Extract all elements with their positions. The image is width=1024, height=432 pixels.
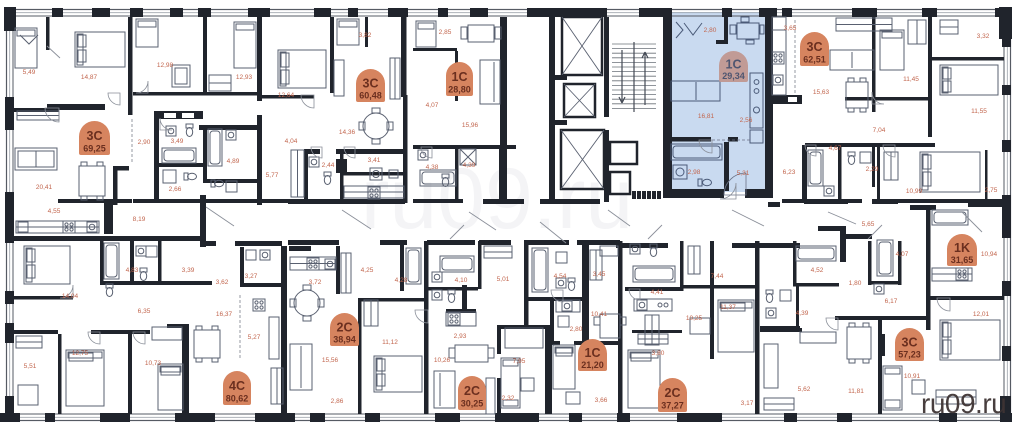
svg-text:2,29: 2,29 (866, 166, 879, 173)
svg-text:10,41: 10,41 (591, 311, 608, 318)
svg-text:4,25: 4,25 (361, 267, 374, 274)
svg-text:6,23: 6,23 (783, 169, 796, 176)
svg-text:3C: 3C (87, 129, 103, 143)
svg-text:1K: 1K (954, 241, 970, 255)
svg-text:12,93: 12,93 (236, 74, 253, 81)
svg-text:3,62: 3,62 (216, 279, 229, 286)
svg-text:37,27: 37,27 (661, 401, 684, 411)
svg-text:10,73: 10,73 (145, 360, 162, 367)
svg-text:3,41: 3,41 (368, 157, 381, 164)
svg-text:14,87: 14,87 (81, 74, 98, 81)
svg-text:14,04: 14,04 (62, 293, 79, 300)
svg-text:2,44: 2,44 (322, 162, 335, 169)
svg-text:7,95: 7,95 (513, 358, 526, 365)
svg-text:30,25: 30,25 (461, 399, 484, 409)
svg-text:1,80: 1,80 (849, 280, 862, 287)
svg-text:2C: 2C (464, 384, 480, 398)
svg-text:5,49: 5,49 (23, 69, 36, 76)
svg-text:8,19: 8,19 (133, 216, 146, 223)
svg-text:6,35: 6,35 (138, 308, 151, 315)
svg-text:2,98: 2,98 (688, 169, 701, 176)
svg-text:4,55: 4,55 (48, 208, 61, 215)
svg-text:2C: 2C (337, 320, 353, 334)
svg-text:15,96: 15,96 (462, 122, 479, 129)
svg-text:4,28: 4,28 (395, 277, 408, 284)
svg-text:4,41: 4,41 (651, 289, 664, 296)
svg-text:10,94: 10,94 (981, 251, 998, 258)
svg-text:1C: 1C (452, 70, 468, 84)
svg-text:2,80: 2,80 (704, 27, 717, 34)
svg-text:21,20: 21,20 (581, 360, 604, 370)
svg-text:69,25: 69,25 (83, 144, 106, 154)
svg-text:16,81: 16,81 (698, 113, 715, 120)
svg-text:3,66: 3,66 (595, 397, 608, 404)
svg-text:5,77: 5,77 (266, 172, 279, 179)
svg-text:4,83: 4,83 (126, 267, 139, 274)
svg-text:6,17: 6,17 (885, 298, 898, 305)
svg-text:2C: 2C (665, 386, 681, 400)
svg-text:4,07: 4,07 (896, 251, 909, 258)
svg-text:12,64: 12,64 (278, 92, 295, 99)
svg-text:2,86: 2,86 (331, 398, 344, 405)
svg-text:3,65: 3,65 (784, 25, 797, 32)
svg-text:15,56: 15,56 (322, 357, 339, 364)
svg-text:3,39: 3,39 (182, 267, 195, 274)
svg-text:3,45: 3,45 (593, 271, 606, 278)
svg-text:1C: 1C (585, 346, 601, 360)
svg-text:11,55: 11,55 (971, 108, 987, 115)
svg-text:5,31: 5,31 (737, 170, 750, 177)
svg-text:3,80: 3,80 (652, 350, 665, 357)
svg-text:57,23: 57,23 (898, 350, 921, 360)
svg-text:5,65: 5,65 (862, 221, 875, 228)
svg-text:4,04: 4,04 (285, 138, 298, 145)
svg-text:4,38: 4,38 (426, 164, 439, 171)
svg-text:4,39: 4,39 (796, 310, 809, 317)
svg-text:2,66: 2,66 (169, 186, 182, 193)
svg-text:3,82: 3,82 (359, 32, 372, 39)
svg-text:3,32: 3,32 (977, 33, 990, 40)
svg-text:62,51: 62,51 (803, 55, 826, 65)
svg-text:2,56: 2,56 (740, 117, 753, 124)
svg-text:4,07: 4,07 (426, 102, 439, 109)
svg-text:4,52: 4,52 (811, 267, 824, 274)
svg-text:2,93: 2,93 (454, 333, 467, 340)
svg-text:4,54: 4,54 (554, 273, 567, 280)
svg-text:7,04: 7,04 (873, 127, 886, 134)
svg-text:3,17: 3,17 (741, 400, 754, 407)
svg-text:4,67: 4,67 (829, 145, 842, 152)
svg-text:3,27: 3,27 (245, 273, 258, 280)
svg-text:5,01: 5,01 (497, 276, 510, 283)
svg-text:11,37: 11,37 (720, 304, 736, 311)
svg-text:11,81: 11,81 (848, 388, 864, 395)
svg-text:14,36: 14,36 (339, 129, 356, 136)
svg-text:16,37: 16,37 (216, 311, 233, 318)
svg-text:12,75: 12,75 (72, 350, 89, 357)
svg-text:38,94: 38,94 (333, 335, 356, 345)
svg-text:4C: 4C (229, 379, 245, 393)
svg-text:3C: 3C (807, 40, 823, 54)
svg-text:5,62: 5,62 (798, 386, 811, 393)
svg-text:12,01: 12,01 (973, 311, 990, 318)
svg-text:3C: 3C (902, 335, 918, 349)
svg-text:3,72: 3,72 (309, 279, 322, 286)
svg-text:1C: 1C (726, 57, 742, 71)
svg-text:10,99: 10,99 (906, 188, 923, 195)
svg-text:4,39: 4,39 (463, 162, 476, 169)
svg-text:3C: 3C (363, 76, 379, 90)
svg-text:5,51: 5,51 (24, 363, 37, 370)
svg-text:10,91: 10,91 (904, 373, 921, 380)
svg-text:20,41: 20,41 (36, 184, 53, 191)
svg-text:2,85: 2,85 (439, 29, 452, 36)
svg-text:28,80: 28,80 (448, 85, 471, 95)
svg-text:80,62: 80,62 (226, 394, 249, 404)
svg-text:7,44: 7,44 (711, 273, 724, 280)
svg-text:2,32: 2,32 (502, 395, 515, 402)
svg-text:60,48: 60,48 (359, 91, 382, 101)
svg-text:2,90: 2,90 (138, 139, 151, 146)
svg-text:4,10: 4,10 (455, 277, 468, 284)
svg-text:15,63: 15,63 (813, 89, 830, 96)
svg-text:4,89: 4,89 (227, 158, 240, 165)
svg-text:ru09.ru: ru09.ru (921, 388, 1006, 419)
svg-text:3,49: 3,49 (171, 138, 184, 145)
svg-text:10,25: 10,25 (686, 315, 703, 322)
svg-text:11,12: 11,12 (382, 339, 398, 346)
svg-text:5,27: 5,27 (248, 334, 261, 341)
svg-text:29,34: 29,34 (722, 71, 745, 81)
svg-text:12,98: 12,98 (157, 62, 174, 69)
svg-text:31,65: 31,65 (951, 255, 974, 265)
svg-text:10,26: 10,26 (434, 357, 451, 364)
svg-text:11,45: 11,45 (903, 76, 919, 83)
svg-text:2,75: 2,75 (985, 187, 998, 194)
svg-text:2,80: 2,80 (570, 326, 583, 333)
